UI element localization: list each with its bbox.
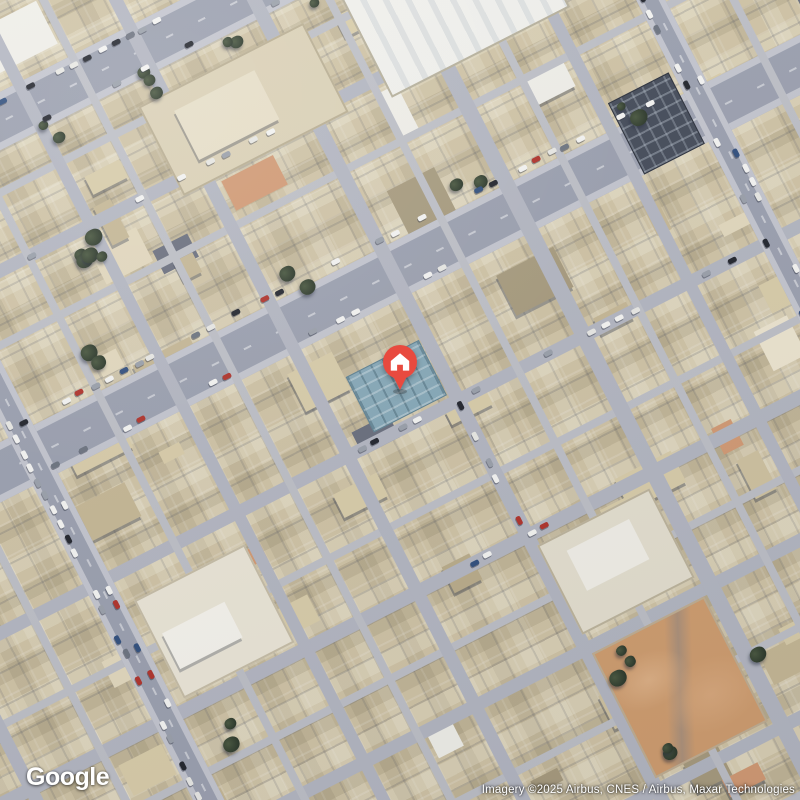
car: [518, 164, 528, 173]
car: [231, 309, 241, 318]
google-maps-satellite-view: Google Imagery ©2025 Airbus, CNES / Airb…: [0, 0, 800, 800]
house-marker-icon: [380, 343, 420, 397]
car: [275, 288, 285, 297]
building: [783, 0, 800, 8]
building: [158, 442, 185, 464]
map-attribution: Imagery ©2025 Airbus, CNES / Airbus, Max…: [482, 784, 795, 796]
tree: [223, 716, 238, 731]
car: [104, 375, 114, 384]
car: [74, 388, 84, 397]
tree: [308, 0, 321, 9]
tree: [277, 264, 298, 284]
car: [190, 331, 200, 340]
satellite-map[interactable]: [0, 0, 800, 800]
car: [331, 257, 341, 266]
car: [575, 135, 585, 144]
place-marker[interactable]: [380, 343, 420, 397]
map-imagery: [0, 0, 800, 800]
tree: [448, 176, 466, 193]
building: [84, 159, 128, 195]
car: [391, 229, 401, 238]
google-logo[interactable]: Google: [26, 763, 109, 792]
car: [559, 143, 569, 152]
car: [531, 155, 541, 164]
car: [61, 396, 71, 405]
